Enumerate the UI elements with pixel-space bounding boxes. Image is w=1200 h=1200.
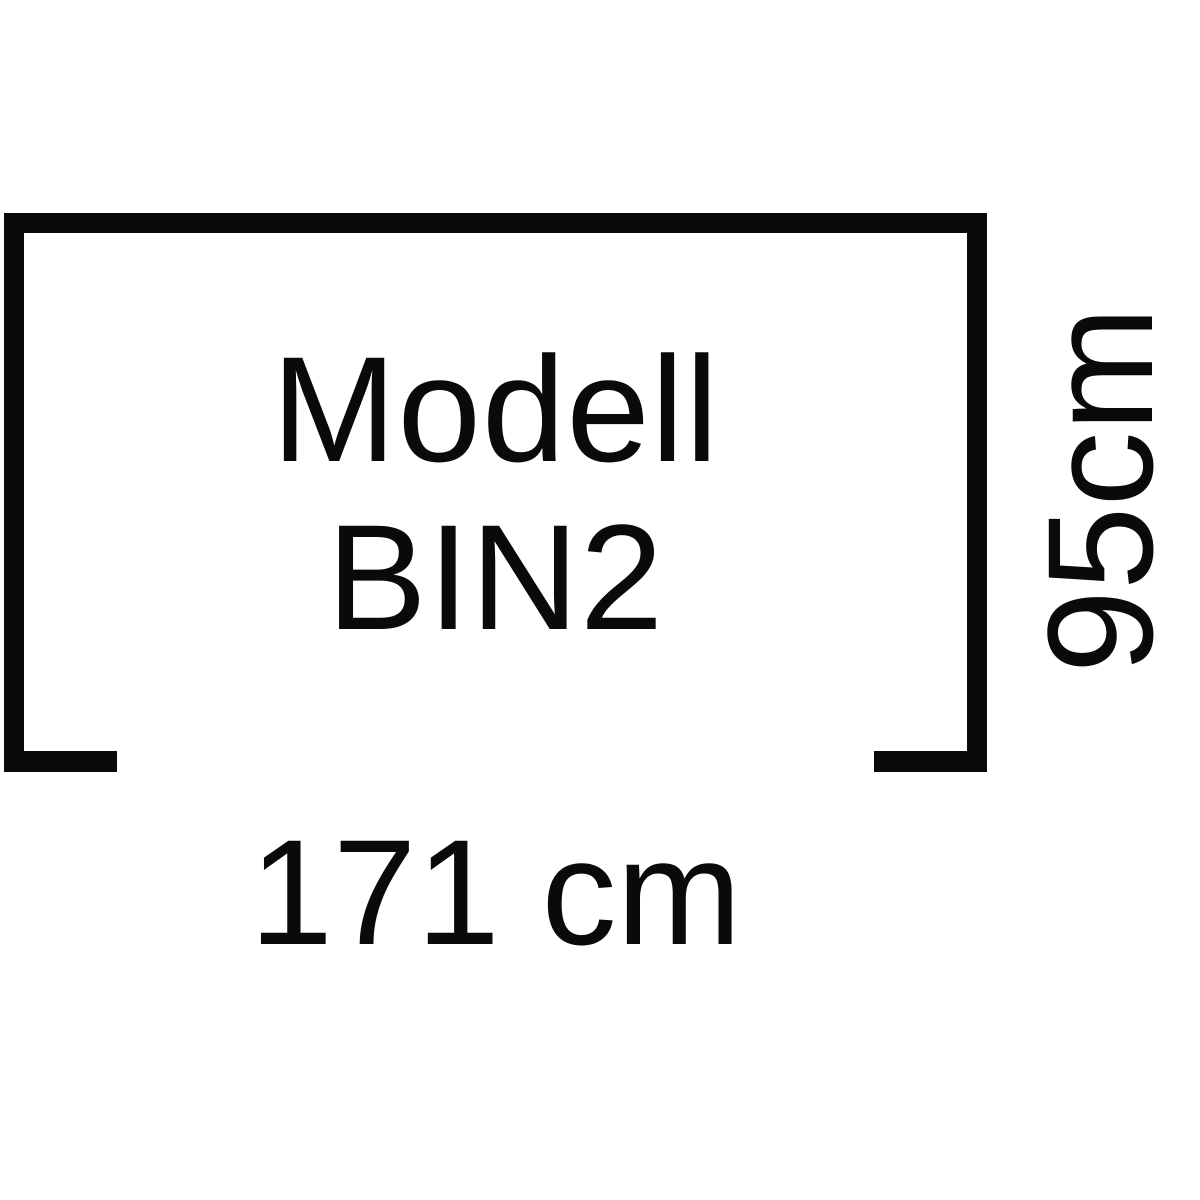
width-dimension-label: 171 cm xyxy=(4,806,987,978)
model-name-line2: BIN2 xyxy=(327,493,664,661)
model-name-label: Modell BIN2 xyxy=(24,223,967,762)
model-name-line1: Modell xyxy=(272,325,720,493)
height-dimension-label: 95cm xyxy=(1025,307,1175,674)
dimension-diagram: Modell BIN2 171 cm 95cm xyxy=(0,0,1200,1200)
